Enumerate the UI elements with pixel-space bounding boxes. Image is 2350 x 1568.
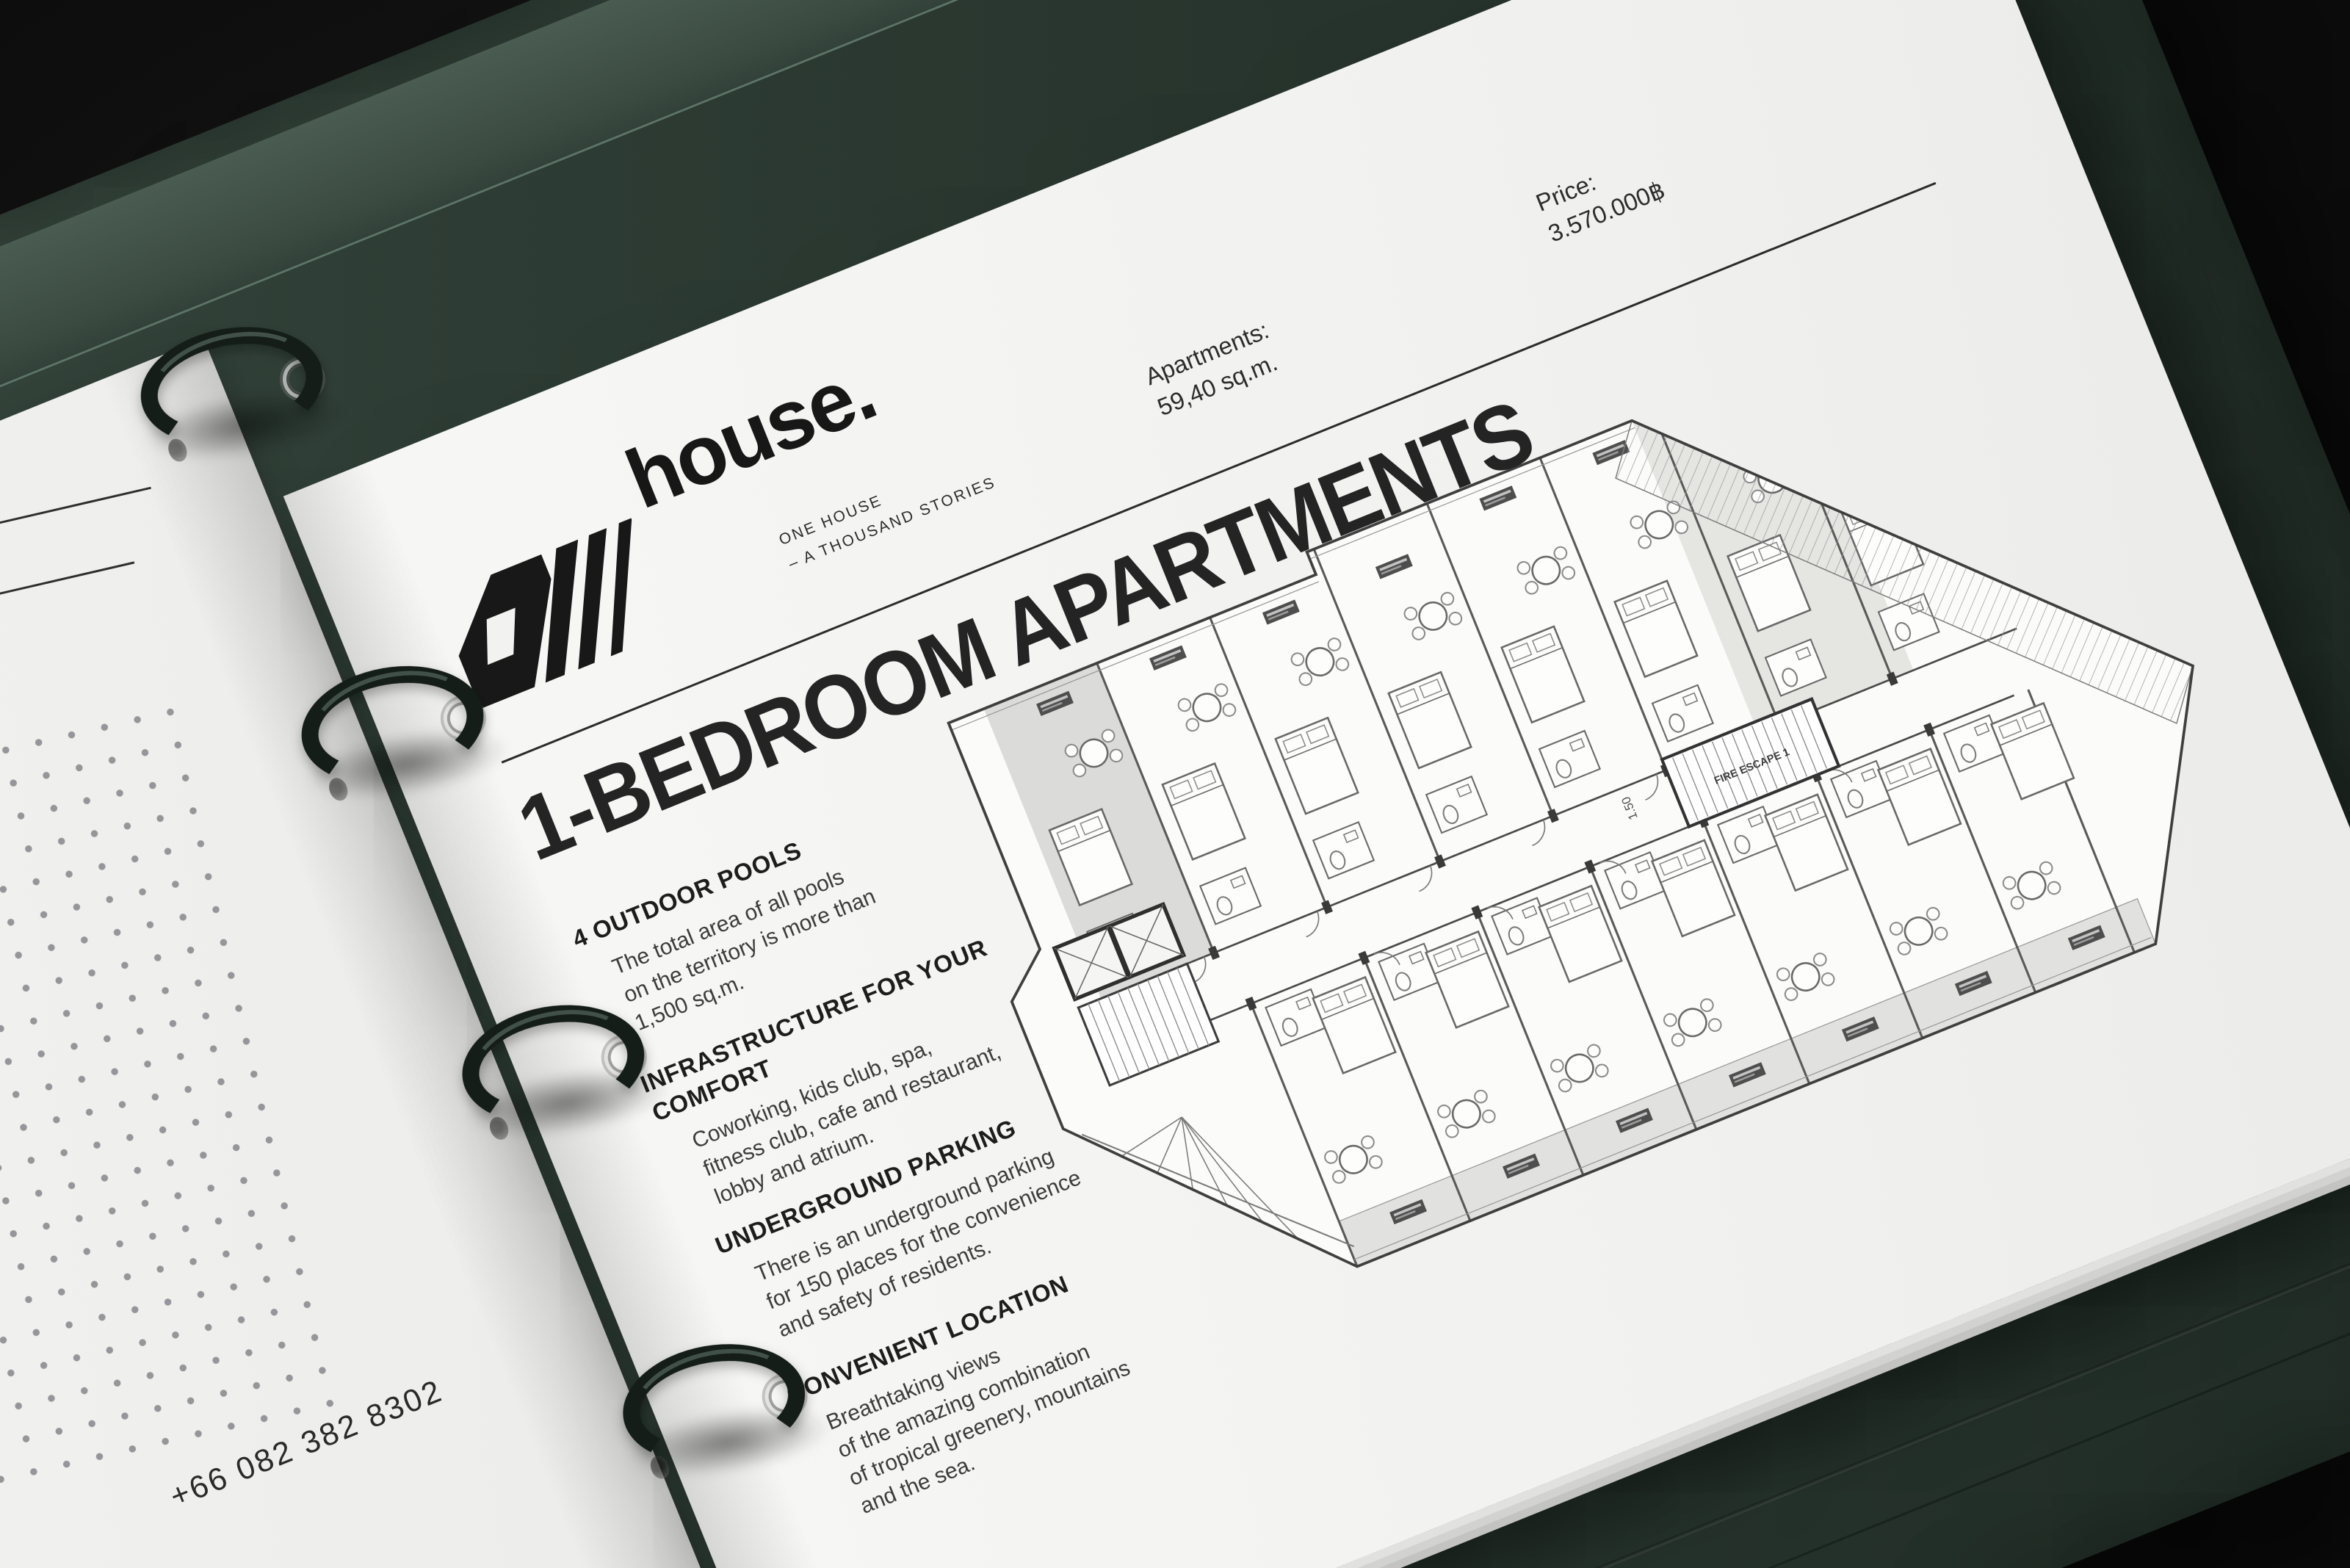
- apartments-info: Apartments: 59,40 sq.m.: [1140, 314, 1286, 424]
- notes-rule-line: [0, 561, 134, 641]
- binder-scene: +66 082 382 8302 house. ONE HOUSE – A TH…: [0, 0, 2350, 1568]
- scene-background: +66 082 382 8302 house. ONE HOUSE – A TH…: [0, 0, 2350, 1568]
- dot-grid-pattern: [0, 692, 350, 1528]
- notes-rule-line: [0, 487, 151, 567]
- price-info: Price: 3.570.000฿: [1531, 142, 1670, 250]
- brand-tagline: ONE HOUSE – A THOUSAND STORIES: [775, 446, 999, 577]
